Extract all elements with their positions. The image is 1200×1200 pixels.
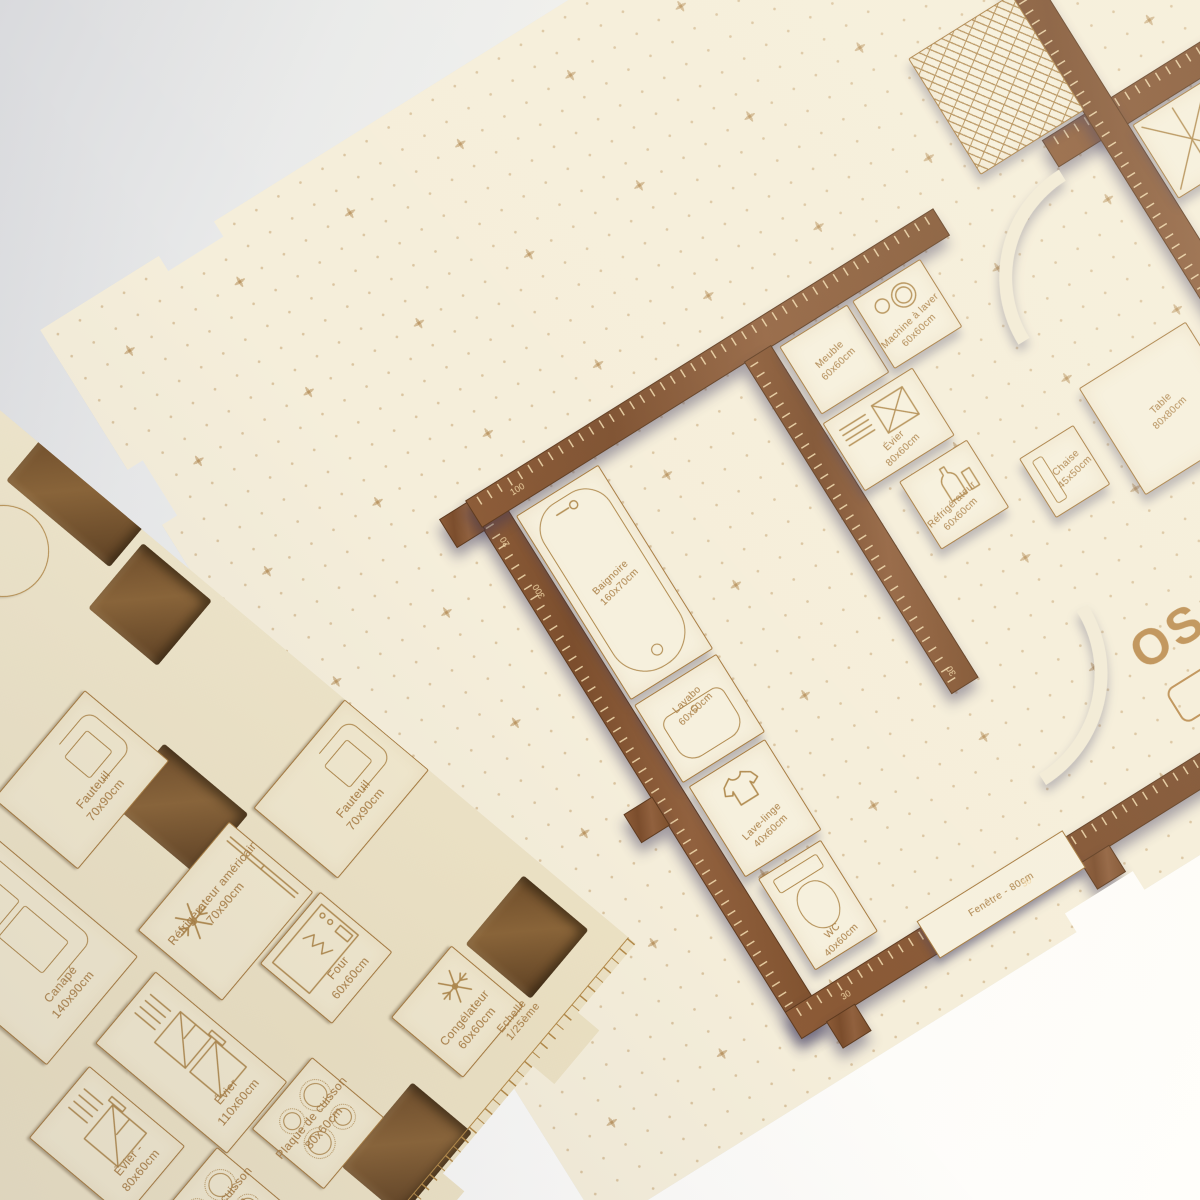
piece-chaise: Chaise 45x50cm — [1019, 425, 1110, 518]
wall-mark-300: 300 — [531, 582, 547, 600]
snowflake-icon — [427, 958, 483, 1014]
piece-label: Table 80x80cm — [1141, 384, 1190, 432]
snowflake-icon — [163, 890, 225, 952]
piece-label: Four 60x60cm — [316, 944, 373, 1003]
sink-icon — [39, 1076, 156, 1193]
piece-label: Réfrigérateur 60x60cm — [925, 479, 988, 541]
wall-mark: 30 — [944, 664, 958, 678]
scale-label: Echelle 1/25ème — [495, 982, 552, 1043]
piece-label: Lave-linge 40x60cm — [740, 800, 793, 853]
piece-label: Évier 80x60cm — [874, 421, 923, 469]
fridge-doors-icon — [219, 833, 302, 907]
bathtub-icon — [528, 477, 699, 686]
piece-label: Meuble 60x60cm — [810, 335, 859, 383]
piece-label: Évier 110x60cm — [203, 1066, 263, 1130]
piece-label: Évier - 80x60cm — [107, 1136, 164, 1195]
burner-icon — [325, 1098, 362, 1135]
wall-mark-20: 20 — [498, 535, 512, 549]
bottle-icon — [930, 450, 989, 507]
window-piece: Fenêtre - 80cm — [917, 830, 1086, 958]
basin-icon — [659, 684, 747, 766]
burner-icon — [198, 1162, 243, 1200]
wall-mark-30: 30 — [839, 988, 853, 1002]
piece-label: Machine à laver 60x60cm — [879, 290, 951, 361]
brand-logo: OS — [1119, 591, 1200, 682]
photo-scene: 20 300 100 30 30 30 Fenêtre - 80cm — [0, 0, 1200, 1200]
wall-mark-100: 100 — [508, 481, 526, 497]
chair-seat-icon — [1031, 455, 1068, 504]
piece-fauteuil-1: Fauteuil 70x90cm — [0, 690, 169, 869]
shirt-icon — [716, 762, 769, 814]
door-arc-icon — [951, 170, 1126, 345]
